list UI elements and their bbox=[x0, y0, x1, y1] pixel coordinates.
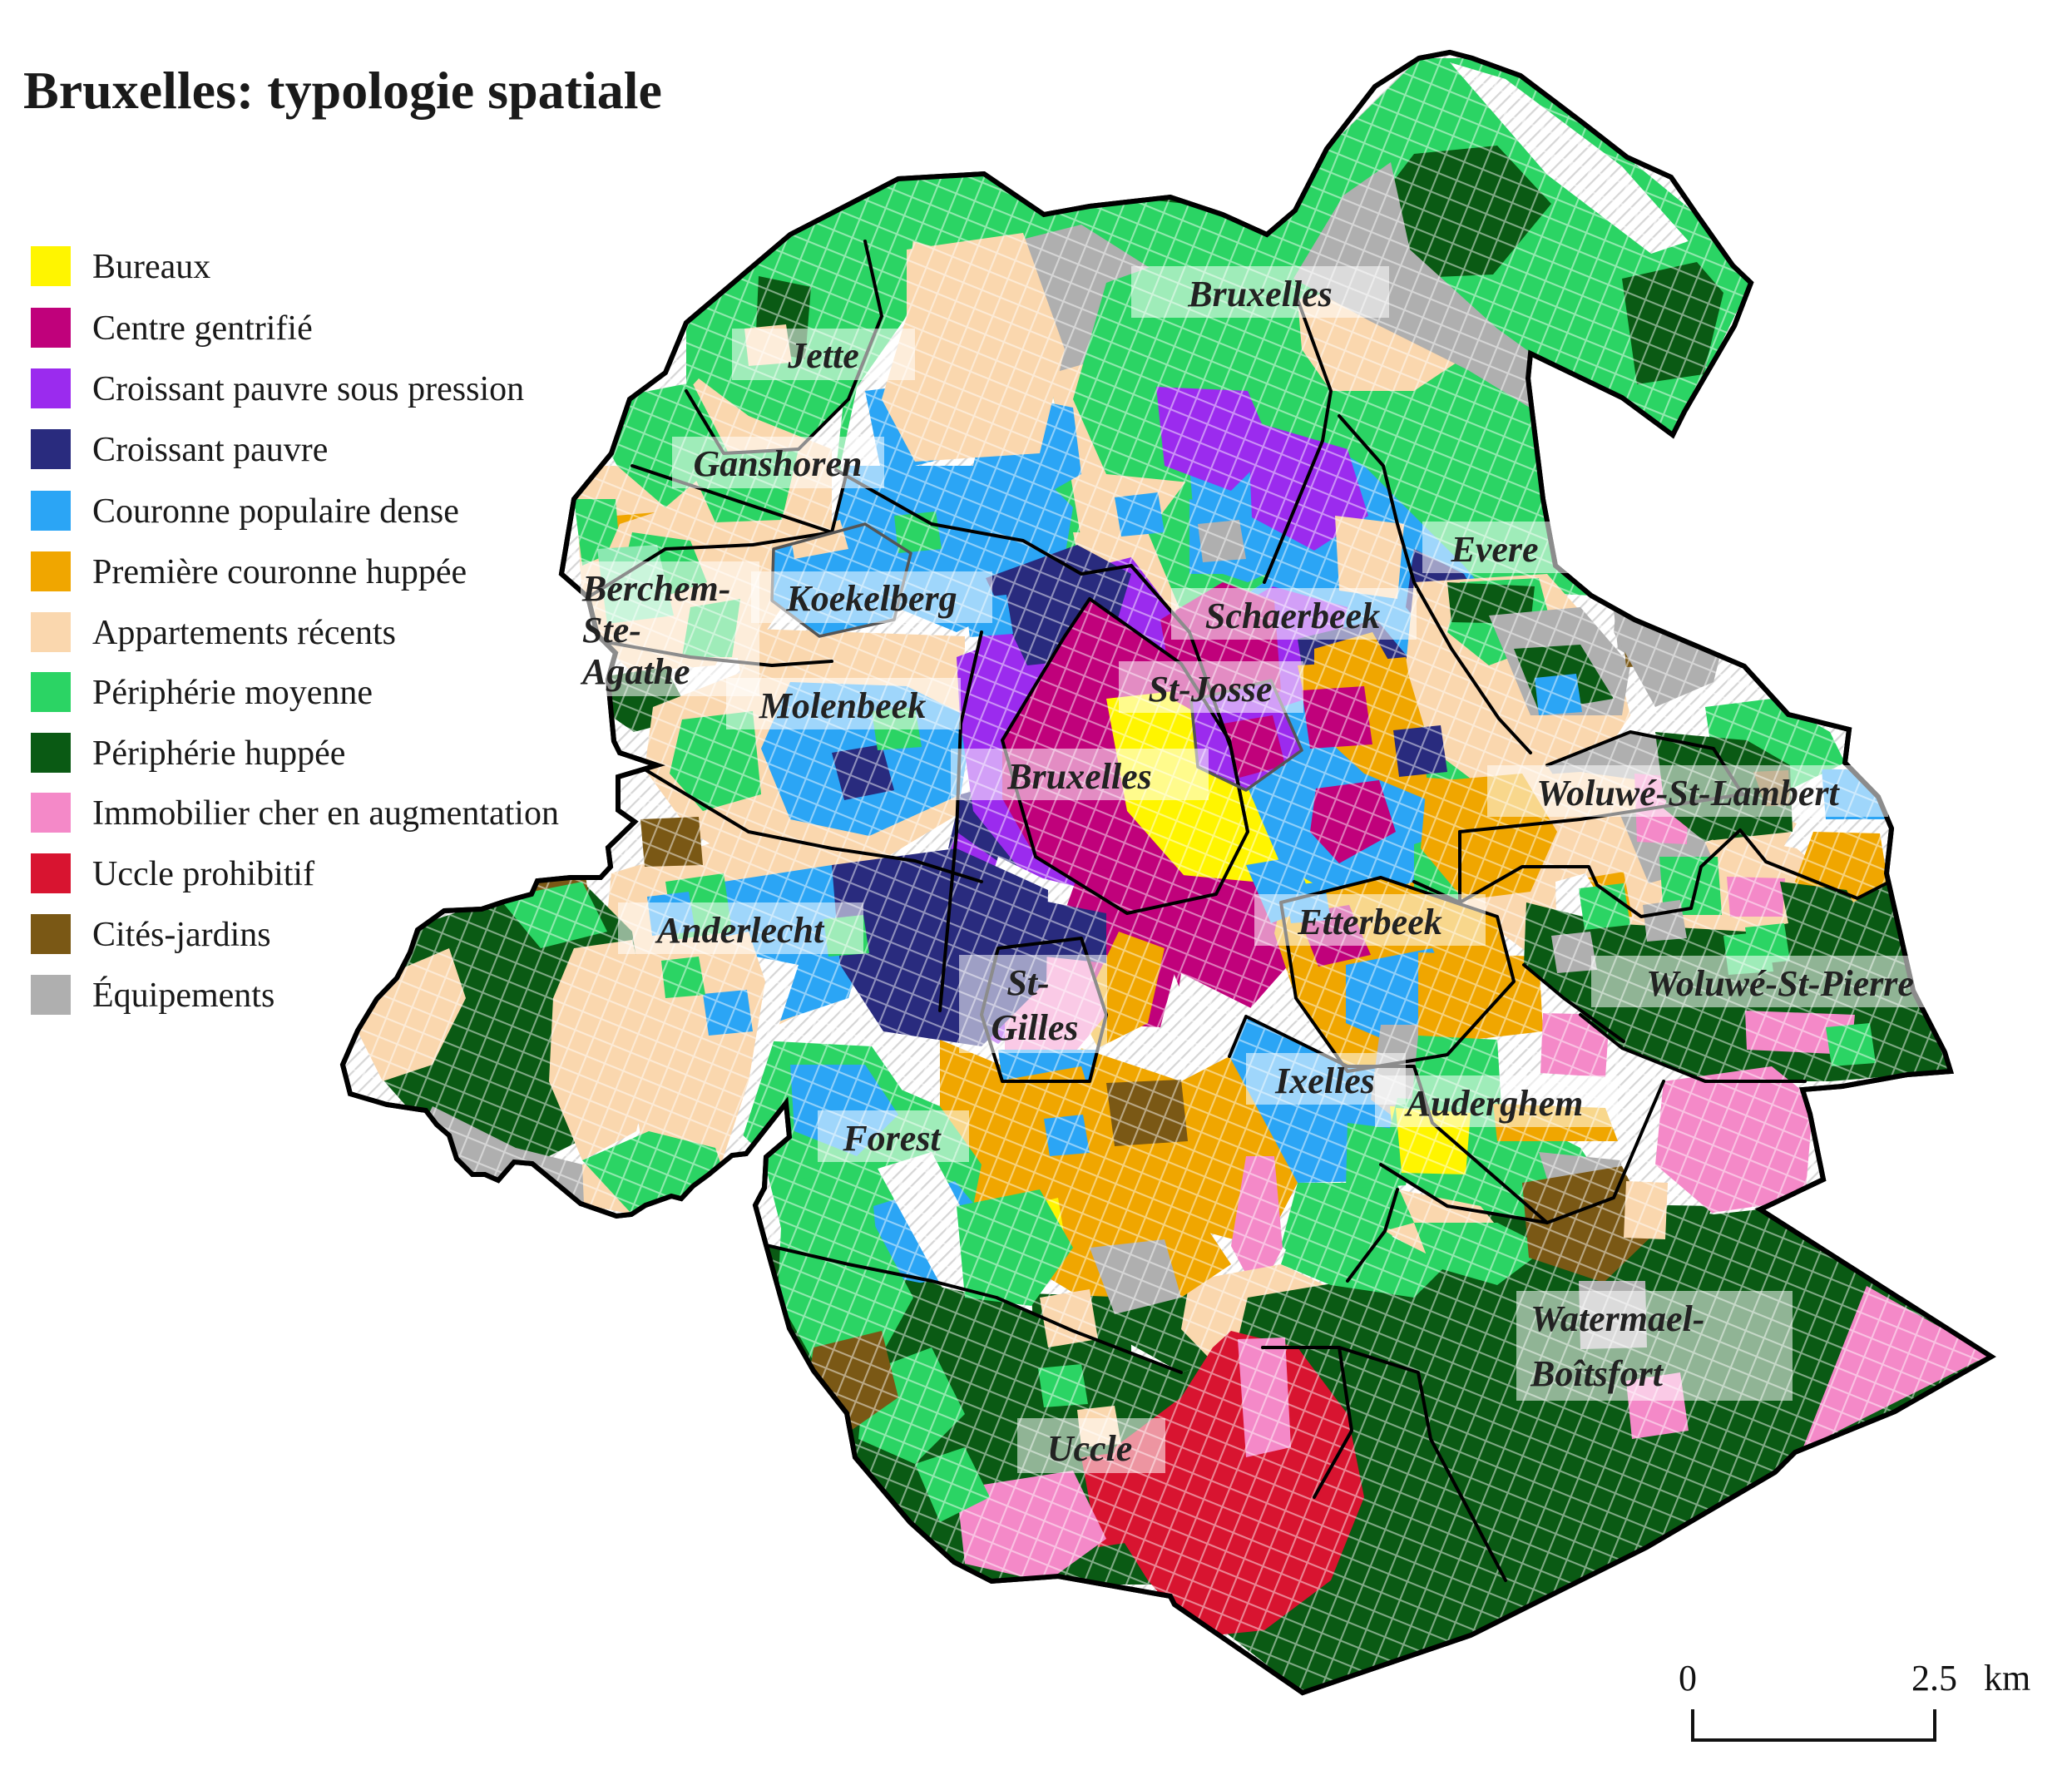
svg-text:Molenbeek: Molenbeek bbox=[759, 685, 926, 726]
svg-text:0: 0 bbox=[1679, 1658, 1697, 1698]
svg-text:Ixelles: Ixelles bbox=[1274, 1061, 1375, 1101]
svg-text:Ganshoren: Ganshoren bbox=[694, 443, 863, 484]
svg-text:Première couronne huppée: Première couronne huppée bbox=[92, 553, 467, 591]
svg-text:Bruxelles: Bruxelles bbox=[1187, 274, 1333, 314]
svg-text:Immobilier cher en augmentatio: Immobilier cher en augmentation bbox=[92, 794, 559, 833]
svg-text:Bruxelles: Bruxelles bbox=[1006, 756, 1152, 797]
svg-text:Woluwé-St-Pierre: Woluwé-St-Pierre bbox=[1646, 963, 1914, 1004]
svg-text:Uccle: Uccle bbox=[1047, 1428, 1133, 1469]
svg-text:Croissant pauvre sous pression: Croissant pauvre sous pression bbox=[92, 370, 524, 408]
svg-text:St-: St- bbox=[1006, 962, 1049, 1003]
svg-text:km: km bbox=[1984, 1658, 2030, 1698]
svg-text:Centre gentrifié: Centre gentrifié bbox=[92, 309, 313, 348]
svg-text:Schaerbeek: Schaerbeek bbox=[1205, 596, 1380, 636]
svg-text:Watermael-: Watermael- bbox=[1531, 1298, 1704, 1339]
svg-text:Périphérie huppée: Périphérie huppée bbox=[92, 734, 345, 773]
svg-text:Bureaux: Bureaux bbox=[92, 248, 210, 286]
svg-text:Gilles: Gilles bbox=[991, 1007, 1078, 1048]
svg-text:St-Josse: St-Josse bbox=[1148, 669, 1272, 710]
svg-text:Anderlecht: Anderlecht bbox=[655, 910, 825, 951]
svg-text:Agathe: Agathe bbox=[580, 651, 690, 692]
svg-text:Boîtsfort: Boîtsfort bbox=[1530, 1353, 1664, 1394]
svg-text:Koekelberg: Koekelberg bbox=[785, 578, 957, 619]
svg-text:Etterbeek: Etterbeek bbox=[1297, 902, 1442, 942]
svg-text:Équipements: Équipements bbox=[92, 976, 274, 1015]
svg-text:Ste-: Ste- bbox=[582, 610, 641, 650]
svg-text:Cités-jardins: Cités-jardins bbox=[92, 916, 271, 954]
svg-text:Croissant pauvre: Croissant pauvre bbox=[92, 431, 328, 469]
svg-text:Forest: Forest bbox=[842, 1118, 942, 1159]
svg-text:Appartements récents: Appartements récents bbox=[92, 614, 396, 652]
svg-text:Bruxelles: typologie spatiale: Bruxelles: typologie spatiale bbox=[23, 61, 662, 120]
svg-text:Auderghem: Auderghem bbox=[1404, 1083, 1584, 1124]
svg-text:Couronne populaire dense: Couronne populaire dense bbox=[92, 492, 459, 531]
svg-text:2.5: 2.5 bbox=[1911, 1658, 1957, 1698]
svg-text:Evere: Evere bbox=[1450, 529, 1538, 570]
svg-text:Périphérie moyenne: Périphérie moyenne bbox=[92, 674, 373, 712]
svg-text:Jette: Jette bbox=[787, 335, 859, 376]
svg-text:Uccle prohibitif: Uccle prohibitif bbox=[92, 855, 314, 893]
svg-text:Woluwé-St-Lambert: Woluwé-St-Lambert bbox=[1536, 773, 1840, 813]
svg-text:Berchem-: Berchem- bbox=[581, 568, 730, 609]
